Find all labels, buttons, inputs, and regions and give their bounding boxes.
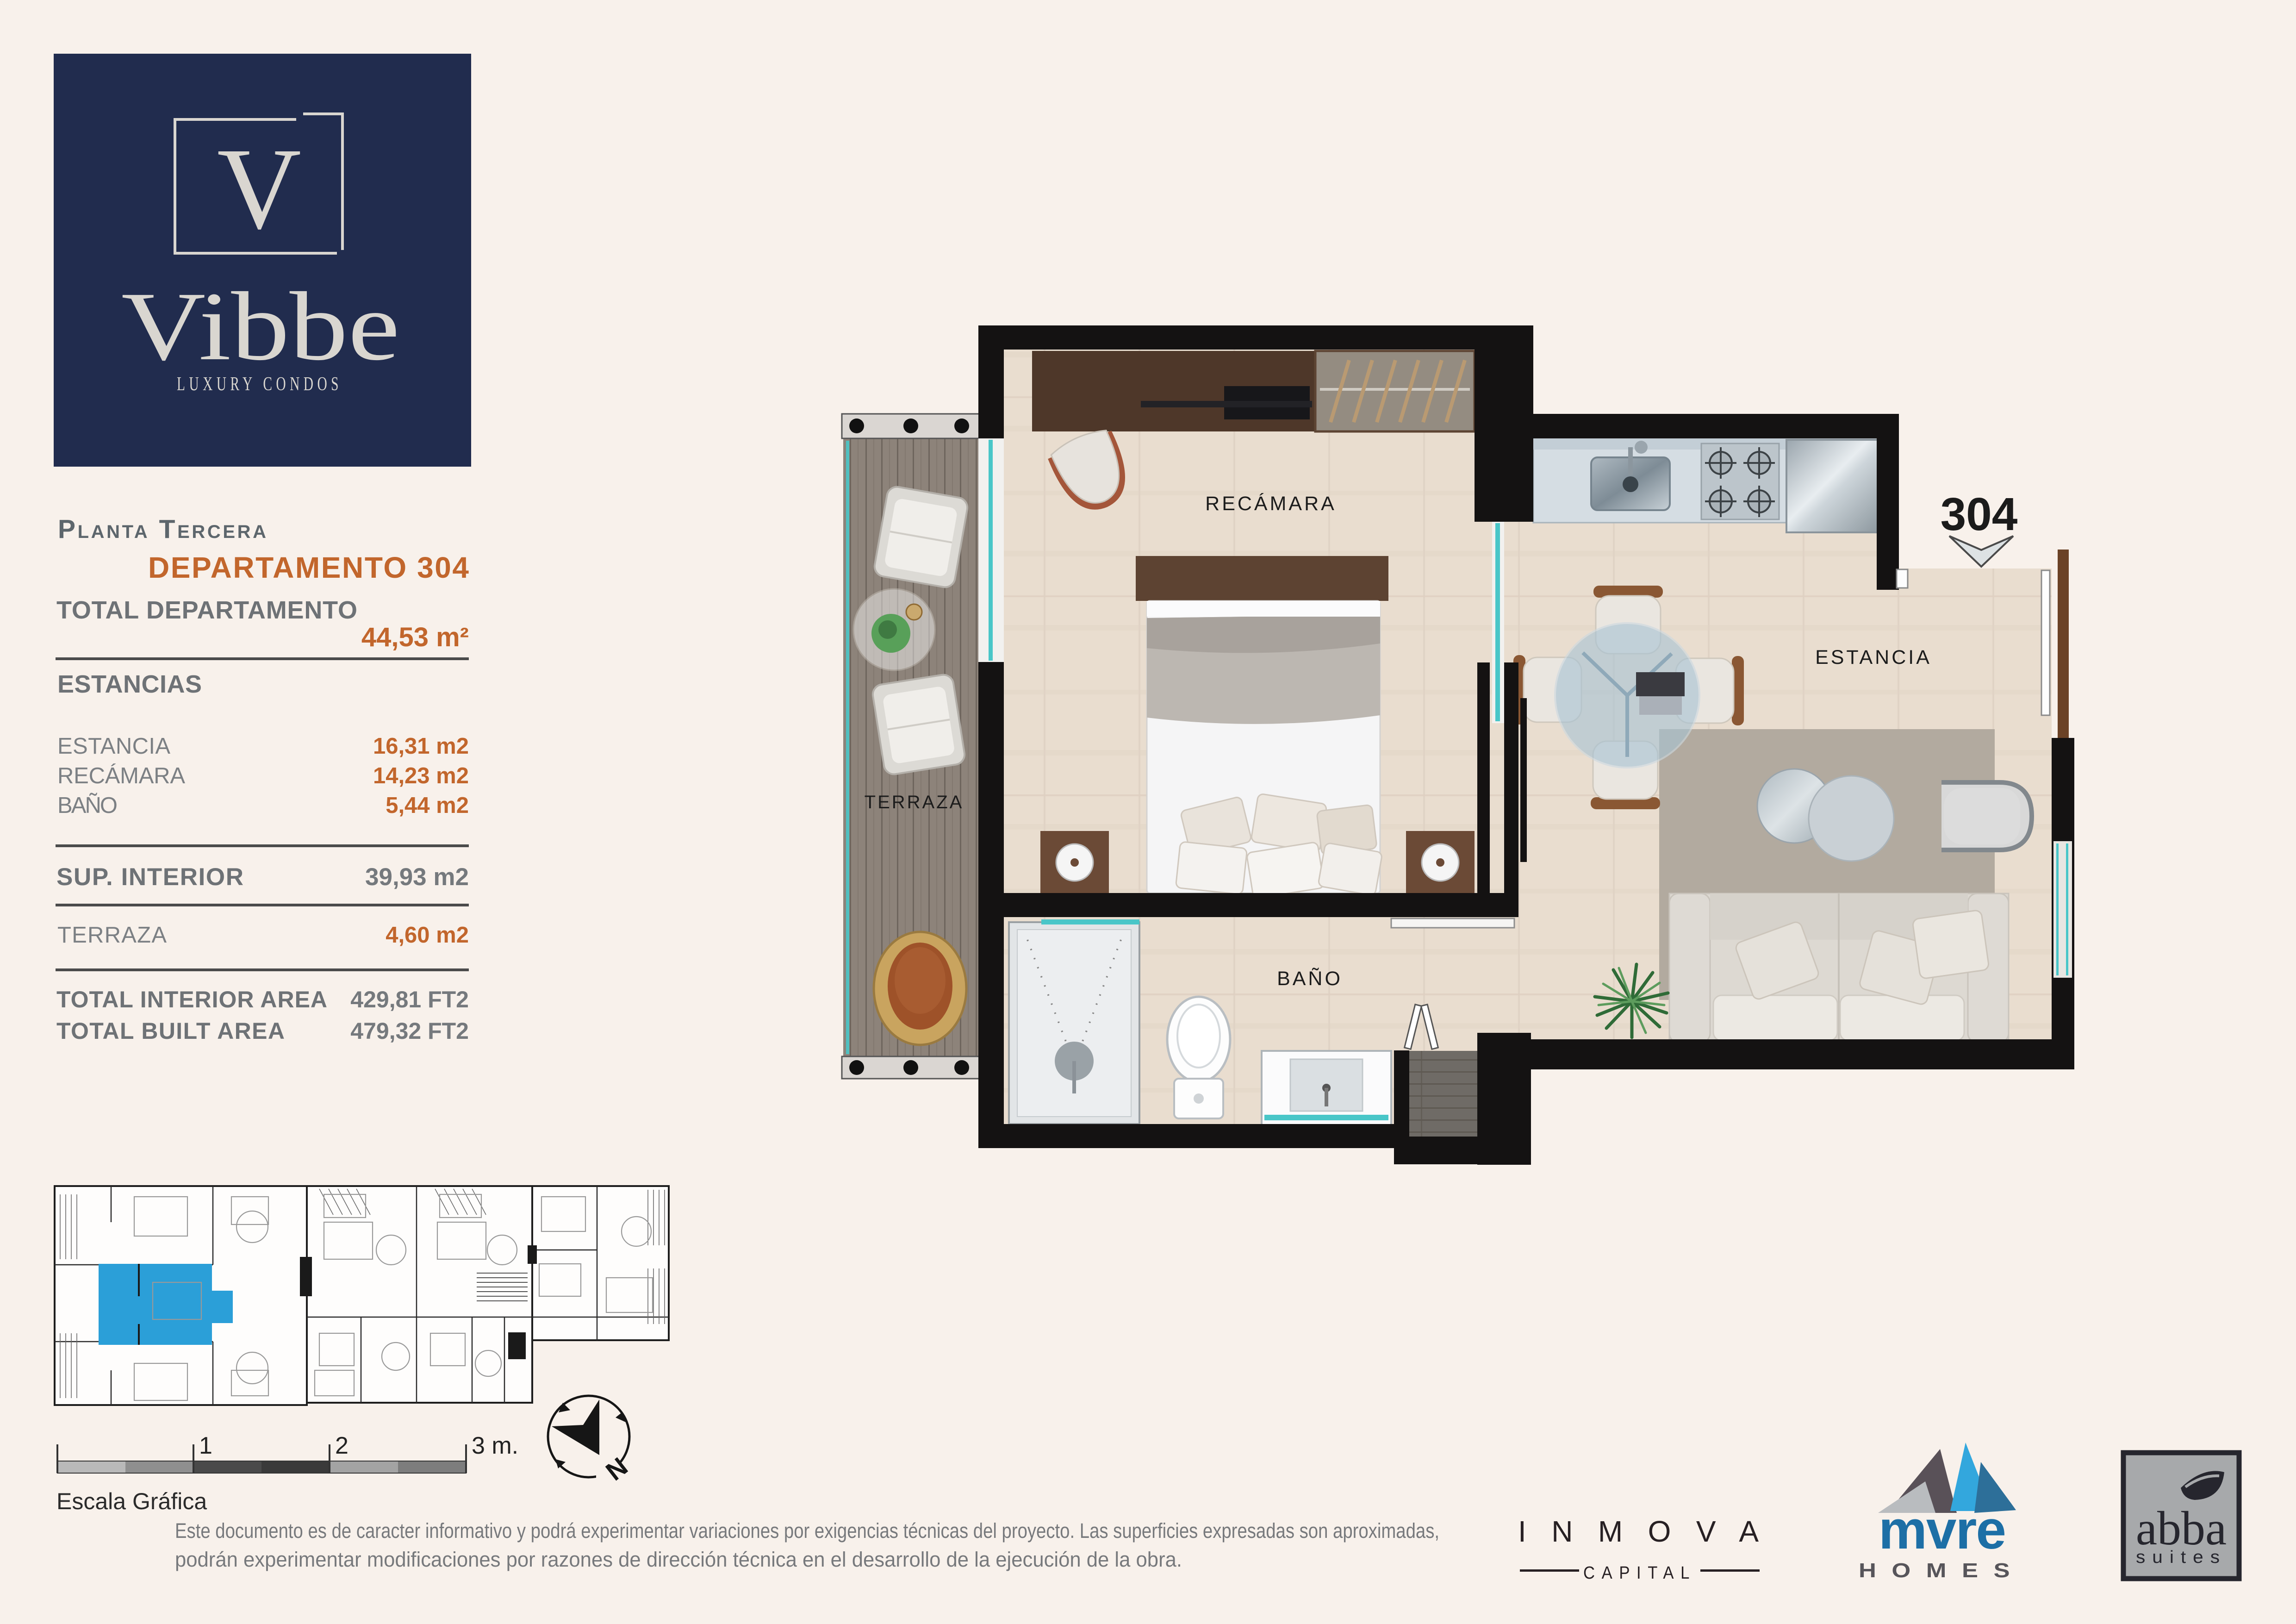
svg-text:SUP. INTERIOR: SUP. INTERIOR [56,863,243,891]
svg-text:TOTAL DEPARTAMENTO: TOTAL DEPARTAMENTO [56,596,357,624]
svg-text:CAPITAL: CAPITAL [1583,1563,1696,1583]
svg-text:Este documento es de caracter: Este documento es de caracter informativ… [175,1519,1439,1543]
svg-text:ESTANCIA: ESTANCIA [57,734,170,759]
svg-text:ESTANCIA: ESTANCIA [1815,646,1932,668]
svg-text:14,23 m2: 14,23 m2 [373,763,469,788]
svg-text:BAÑO: BAÑO [57,793,118,818]
svg-text:Vibbe: Vibbe [121,272,400,381]
svg-text:479,32 FT2: 479,32 FT2 [350,1018,469,1044]
svg-text:429,81 FT2: 429,81 FT2 [350,987,469,1012]
svg-text:HOMES: HOMES [1859,1559,2025,1582]
svg-text:mvre: mvre [1879,1499,2005,1561]
svg-text:TERRAZA: TERRAZA [865,792,964,812]
svg-text:TOTAL BUILT AREA: TOTAL BUILT AREA [56,1018,285,1044]
svg-text:304: 304 [1941,488,2018,540]
svg-text:DEPARTAMENTO 304: DEPARTAMENTO 304 [148,551,469,584]
svg-text:TOTAL INTERIOR AREA: TOTAL INTERIOR AREA [56,987,327,1012]
svg-text:5,44 m2: 5,44 m2 [386,793,469,818]
svg-text:ESTANCIAS: ESTANCIAS [57,670,202,698]
svg-text:TERRAZA: TERRAZA [57,923,167,948]
svg-text:44,53 m²: 44,53 m² [361,622,469,652]
svg-text:4,60 m2: 4,60 m2 [386,923,469,948]
svg-text:1: 1 [199,1432,212,1459]
svg-text:16,31 m2: 16,31 m2 [373,734,469,759]
svg-text:2: 2 [335,1432,348,1459]
svg-text:LUXURY CONDOS: LUXURY CONDOS [177,374,342,395]
svg-text:RECÁMARA: RECÁMARA [1205,493,1337,515]
svg-text:podrán experimentar modificaci: podrán experimentar modificaciones por r… [175,1548,1182,1571]
svg-text:3 m.: 3 m. [472,1432,518,1459]
svg-text:Escala Gráfica: Escala Gráfica [56,1488,207,1514]
svg-text:RECÁMARA: RECÁMARA [57,763,185,788]
svg-text:abba: abba [2136,1502,2227,1555]
svg-text:V: V [217,124,301,253]
svg-text:39,93 m2: 39,93 m2 [365,863,469,891]
svg-text:suites: suites [2136,1548,2227,1567]
svg-text:BAÑO: BAÑO [1277,968,1343,990]
